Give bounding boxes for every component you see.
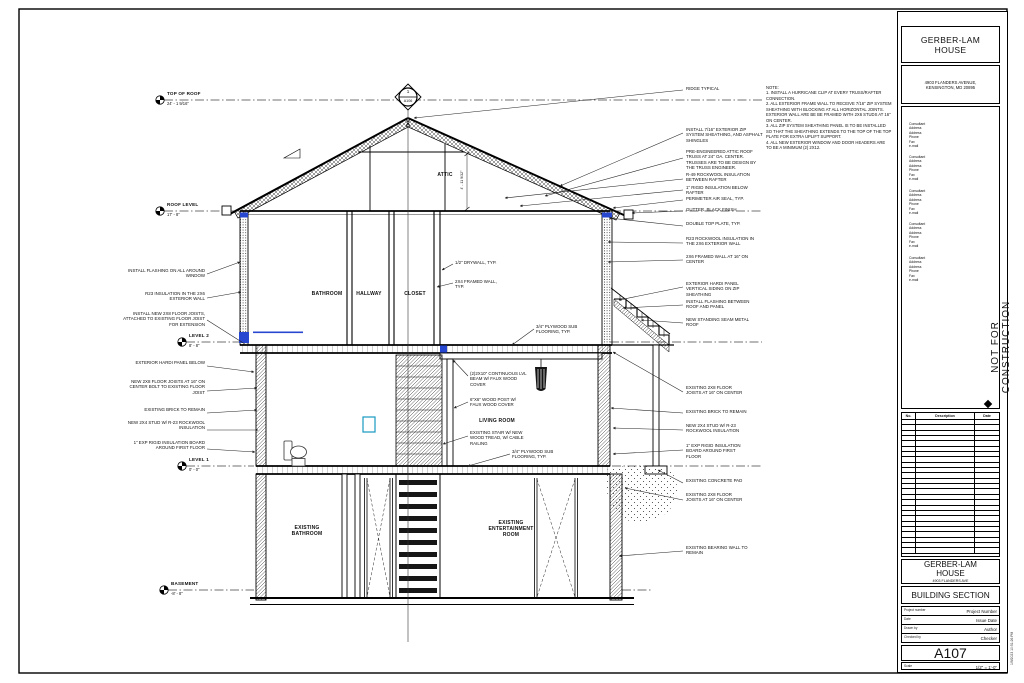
revision-col-description: Description xyxy=(916,413,975,419)
firm-address: 4903 FLANDERS AVENUE, KENSINGTON, MD 208… xyxy=(925,80,977,90)
level-basement-name: BASEMENT xyxy=(171,581,221,587)
sheet-number-box: A107 xyxy=(901,645,1000,661)
lvl-beam xyxy=(440,353,602,359)
plot-timestamp: 1/9/2023 10:51:26 PM xyxy=(1010,595,1014,665)
roof xyxy=(222,118,633,220)
annot-metal-roof: NEW STANDING SEAM METAL ROOF xyxy=(686,317,756,328)
field-value: Author xyxy=(984,627,997,632)
field-project-number: Project number Project Number xyxy=(902,607,999,616)
level-2-elev: 8' - 8" xyxy=(189,343,239,348)
project-name: GERBER-LAM HOUSE xyxy=(902,561,999,579)
level-basement-elev: -8' - 8" xyxy=(171,591,221,596)
annot-lvl-beam: (2)2X10" CONTINUOUS LVL BEAM W/ FAUX WOO… xyxy=(470,371,528,387)
sheet-number: A107 xyxy=(934,645,967,661)
annot-rigid-board-left: 1" EXP RIGID INSULATION BOARD AROUND FIR… xyxy=(125,440,205,451)
revision-col-no: No. xyxy=(902,413,916,419)
level1-floor xyxy=(256,466,610,474)
annot-2x4-framed-wall: 2X4 FRAMED WALL, TYP. xyxy=(455,279,505,290)
annot-hardi-panel: EXTERIOR HARDI PANEL VERTICAL SIDING ON … xyxy=(686,281,758,297)
room-living-room: LIVING ROOM xyxy=(467,418,527,424)
basement xyxy=(250,474,634,605)
annot-r23-rockwool: R23 ROCKWOOL INSULATION IN THE 2X6 EXTER… xyxy=(686,236,756,247)
toilet xyxy=(284,441,307,466)
annot-new-joists-extension: INSTALL NEW 2X8 FLOOR JOISTS, ATTACHED T… xyxy=(118,311,205,327)
annot-attic-truss: PRE-ENGINEERED ATTIC ROOF TRUSS AT 24" O… xyxy=(686,149,764,171)
scale-box: Scale 1/2" = 1'-0" xyxy=(901,662,1000,670)
room-hallway: HALLWAY xyxy=(347,291,391,297)
field-label: Drawn by xyxy=(904,626,917,630)
annot-ridge: RIDGE TYPICAL xyxy=(686,86,766,91)
pendant-light xyxy=(535,359,547,391)
annot-2x4-stud-left: NEW 2X4 STUD W/ R-23 ROCKWOOL INSULATION xyxy=(125,420,205,431)
firm-address-box: 4903 FLANDERS AVENUE, KENSINGTON, MD 208… xyxy=(901,65,1000,104)
consultant-entry: Consultant Address Address Phone Fax e-m… xyxy=(909,155,925,182)
annot-existing-brick-left: EXISTING BRICK TO REMAIN xyxy=(125,407,205,412)
consultant-box: Consultant Address Address Phone Fax e-m… xyxy=(901,106,1000,409)
revision-col-date: Date xyxy=(975,413,999,419)
level-markers xyxy=(156,96,186,594)
sheet-title: BUILDING SECTION xyxy=(911,590,989,600)
section-marker-detail: 1 xyxy=(400,89,416,95)
room-existing-entertainment: EXISTING ENTERTAINMENT ROOM xyxy=(481,520,541,538)
annot-2x4-stud-right: NEW 2X4 STUD W/ R-23 ROCKWOOL INSULATION xyxy=(686,423,748,434)
annot-bearing-wall: EXISTING BEARING WALL TO REMAIN xyxy=(686,545,748,556)
annot-concrete-pad: EXISTING CONCRETE PAD xyxy=(686,478,748,483)
field-label: Date xyxy=(904,617,911,621)
room-closet: CLOSET xyxy=(393,291,437,297)
level-roof-name: ROOF LEVEL xyxy=(167,202,227,208)
annot-existing-brick-right: EXISTING BRICK TO REMAIN xyxy=(686,409,748,414)
stair-first-floor xyxy=(396,355,442,466)
consultant-entry: Consultant Address Address Phone Fax e-m… xyxy=(909,256,925,283)
field-date: Date Issue Date xyxy=(902,616,999,625)
drawing-sheet: { "titleblock": { "firm_name": "GERBER-L… xyxy=(0,0,1024,683)
section-marker-sheet: A106 xyxy=(398,99,418,104)
annot-2x6-wall: 2X6 FRAMED WALL AT 16" ON CENTER xyxy=(686,254,756,265)
field-checked-by: Checked by Checker xyxy=(902,634,999,643)
annot-r23-left: R23 INSULATION IN THE 2X6 EXTERIOR WALL xyxy=(125,291,205,302)
field-value: Project Number xyxy=(966,609,997,614)
sheet-title-box: BUILDING SECTION xyxy=(901,586,1000,604)
gutter-right xyxy=(624,210,633,219)
annot-wood-post: 6"X6" WOOD POST W/ FAUX WOOD COVER xyxy=(470,397,525,408)
annot-existing-joists-upper: EXISTING 2X8 FLOOR JOISTS AT 16" ON CENT… xyxy=(686,385,748,396)
annot-existing-stair: EXISTING STAIR W/ NEW WOOD TREAD, W/ CAB… xyxy=(470,430,525,446)
firm-name-box: GERBER-LAM HOUSE xyxy=(901,26,1000,63)
level-top-of-roof-name: TOP OF ROOF xyxy=(167,91,227,97)
level-top-of-roof-elev: 24' - 1 9/16" xyxy=(167,101,227,106)
revision-table: No. Description Date xyxy=(901,412,1000,557)
annot-zip-sheathing: INSTALL 7/16" EXTERIOR ZIP SYSTEM SHEATH… xyxy=(686,127,764,143)
annot-drywall: 1/2" DRYWALL, TYP. xyxy=(455,260,505,265)
project-address: 4903 FLANDERS AVE xyxy=(902,579,999,583)
level-2-name: LEVEL 2 xyxy=(189,333,239,339)
annot-r49-insulation: R-49 ROCKWOOL INSULATION BETWEEN RAFTER xyxy=(686,172,756,183)
annot-rigid-board-right: 1" EXP RIGID INSULATION BOARD AROUND FIR… xyxy=(686,443,748,459)
annot-window-flashing: INSTALL FLASHING ON ALL AROUND WINDOW xyxy=(125,268,205,279)
annot-plywood-sub-lower: 3/4" PLYWOOD SUB FLOORING, TYP. xyxy=(512,449,567,460)
exterior-stair-roof xyxy=(605,288,677,522)
attic-height-dimension: 4' - 11 9/32" xyxy=(460,152,464,208)
room-bathroom: BATHROOM xyxy=(300,291,354,297)
general-notes: NOTE: 1. INSTALL A HURRICANE CLIP AT EVE… xyxy=(766,85,892,150)
revision-header: No. Description Date xyxy=(902,413,999,420)
revision-row xyxy=(902,548,999,553)
project-name-box: GERBER-LAM HOUSE 4903 FLANDERS AVE xyxy=(901,559,1000,584)
scale-value: 1/2" = 1'-0" xyxy=(976,665,997,670)
revision-rows xyxy=(902,420,999,554)
title-block: GERBER-LAM HOUSE 4903 FLANDERS AVENUE, K… xyxy=(897,11,1008,673)
level-roof-elev: 17' - 8" xyxy=(167,212,227,217)
annot-rigid-insulation: 1" RIGID INSULATION BELOW RAFTER xyxy=(686,185,756,196)
room-attic: ATTIC xyxy=(425,172,465,178)
slope-indicator xyxy=(284,149,300,158)
scale-label: Scale xyxy=(904,664,912,668)
field-label: Checked by xyxy=(904,635,921,639)
not-for-construction-stamp: NOT FOR CONSTRUCTION xyxy=(990,277,1012,417)
consultant-entry: Consultant Address Address Phone Fax e-m… xyxy=(909,122,925,149)
fields-box: Project number Project Number Date Issue… xyxy=(901,606,1000,643)
field-drawn-by: Drawn by Author xyxy=(902,625,999,634)
firm-name: GERBER-LAM HOUSE xyxy=(921,35,980,55)
wood-post xyxy=(447,359,453,466)
room-existing-bathroom: EXISTING BATHROOM xyxy=(277,525,337,537)
annot-plywood-sub-upper: 3/4" PLYWOOD SUB FLOORING, TYP. xyxy=(536,324,591,335)
porch-post xyxy=(653,345,659,466)
annot-flashing-roof-panel: INSTALL FLASHING BETWEEN ROOF AND PANEL xyxy=(686,299,758,310)
consultant-entry: Consultant Address Address Phone Fax e-m… xyxy=(909,222,925,249)
level-1-elev: 0' - 0" xyxy=(189,467,239,472)
annot-new-joists-bolt: NEW 2X8 FLOOR JOISTS AT 16" ON CENTER BO… xyxy=(125,379,205,395)
annot-hardi-below: EXTERIOR HARDI PANEL BELOW xyxy=(125,360,205,365)
annot-gutter: GUTTER, BLACK FINISH xyxy=(686,207,756,212)
field-value: Issue Date xyxy=(976,618,997,623)
field-value: Checker xyxy=(981,636,997,641)
consultant-entry: Consultant Address Address Phone Fax e-m… xyxy=(909,189,925,216)
annot-existing-joists-basement: EXISTING 2X8 FLOOR JOISTS AT 16" ON CENT… xyxy=(686,492,748,503)
annot-air-seal: PERIMETER AIR SEAL, TYP. xyxy=(686,196,756,201)
level-1-name: LEVEL 1 xyxy=(189,457,239,463)
annot-top-plate: DOUBLE TOP PLATE, TYP. xyxy=(686,221,756,226)
field-label: Project number xyxy=(904,608,926,612)
